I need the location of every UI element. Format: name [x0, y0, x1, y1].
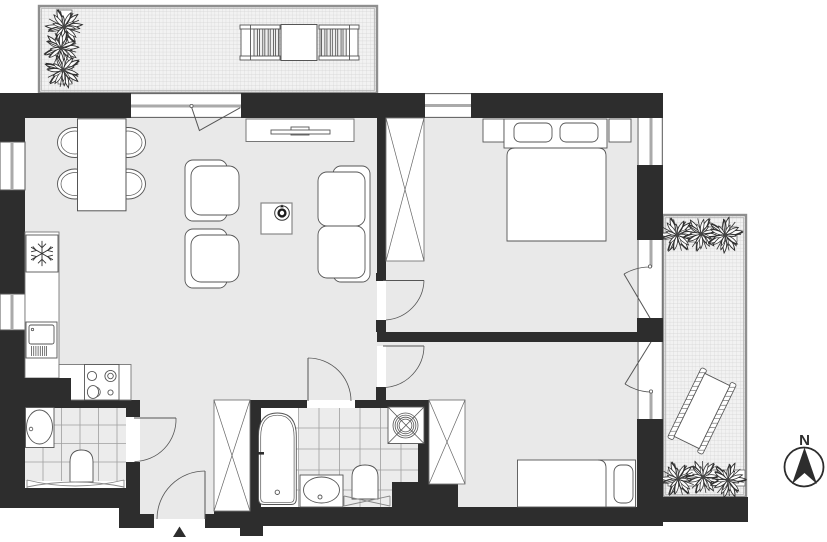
- svg-text:N: N: [799, 432, 810, 449]
